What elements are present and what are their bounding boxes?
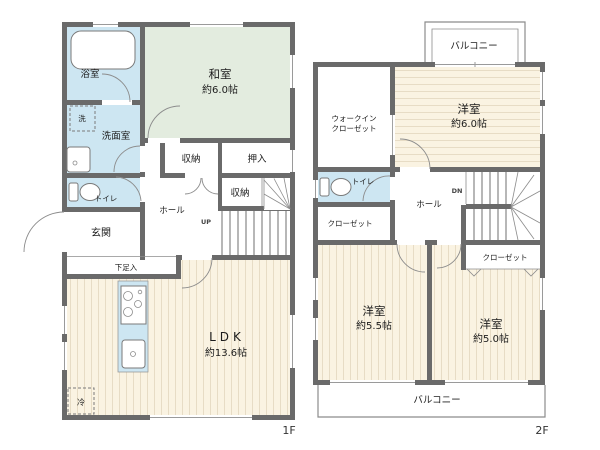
label-laundry: 洗 [78, 113, 86, 123]
toilet-icon-2f [320, 178, 329, 196]
room-label-toilet-1f: トイレ [95, 194, 118, 203]
label-balcony-north: バルコニー [450, 41, 497, 52]
room-label-bath: 浴室 [80, 68, 99, 80]
floorplan-image: 和室 約6.0帖 浴室 洗面室 洗 トイレ 玄関 下足入 ホール 収納 押入 収… [0, 0, 600, 450]
stove-icon [121, 286, 146, 324]
room-label-hall-2f: ホール [416, 200, 442, 210]
label-closet-east: クローゼット [483, 252, 528, 262]
tatami-room-area [145, 27, 290, 138]
bathtub-icon [71, 31, 135, 69]
floorplan-svg: 和室 約6.0帖 浴室 洗面室 洗 トイレ 玄関 下足入 ホール 収納 押入 収… [0, 0, 600, 450]
room-size-tatami: 約6.0帖 [202, 83, 238, 96]
ldk-area [67, 260, 290, 415]
label-balcony-south: バルコニー [413, 395, 460, 406]
room-size-bedroom55: 約5.5帖 [356, 319, 392, 332]
bedroom6-area [395, 67, 540, 167]
room-label-washroom: 洗面室 [102, 130, 131, 142]
label-shoe-cabinet: 下足入 [115, 263, 138, 272]
room-label-ldk: LDK [209, 330, 245, 344]
room-label-entrance: 玄関 [91, 226, 111, 239]
label-refrigerator: 冷 [77, 397, 85, 407]
room-label-bedroom50: 洋室 [480, 317, 503, 331]
room-label-toilet-2f: トイレ [352, 177, 375, 186]
label-storage-upper: 収納 [181, 153, 200, 165]
room-size-bedroom6: 約6.0帖 [451, 117, 487, 130]
floor-label-1f: 1F [282, 424, 295, 437]
room-label-bedroom55: 洋室 [363, 304, 386, 318]
toilet-icon-1f [69, 183, 78, 201]
label-closet-west: クローゼット [328, 218, 373, 228]
room-label-hall-1f: ホール [159, 206, 185, 216]
room-size-bedroom50: 約5.0帖 [473, 332, 509, 345]
label-storage-lower: 収納 [230, 187, 249, 199]
washbasin-icon [67, 147, 90, 172]
sink-icon [122, 340, 145, 368]
label-stairs-up: UP [201, 218, 211, 226]
label-wic-line1: ウォークイン [332, 114, 377, 123]
fixtures-2f [320, 178, 351, 196]
label-wic-line2: クローゼット [332, 123, 377, 133]
label-oshiire: 押入 [247, 153, 267, 165]
room-label-tatami: 和室 [209, 67, 232, 81]
room-label-bedroom6: 洋室 [458, 102, 481, 116]
floor-label-2f: 2F [535, 424, 548, 437]
label-stairs-down: DN [452, 187, 463, 195]
room-size-ldk: 約13.6帖 [205, 346, 247, 359]
